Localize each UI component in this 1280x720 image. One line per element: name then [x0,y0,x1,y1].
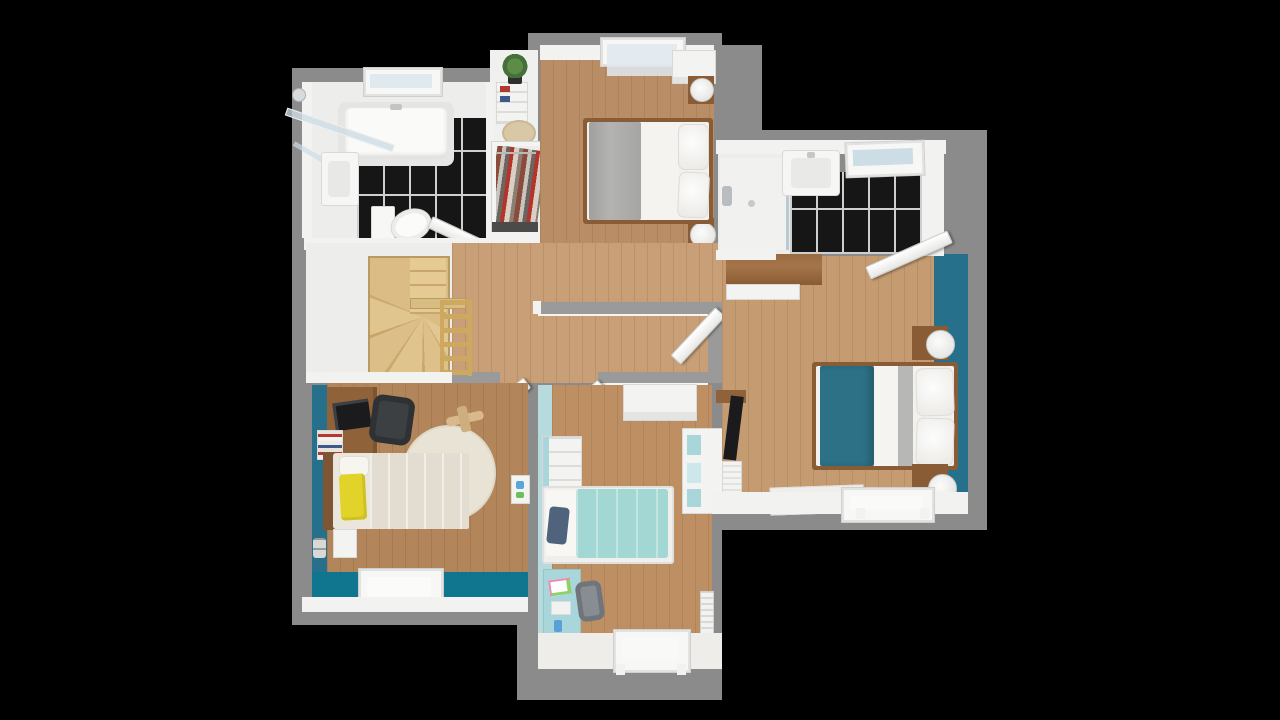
floorplan-scene [0,0,1280,720]
washbasin [321,152,359,206]
child-chair [574,579,605,622]
wardrobe-clothes [492,145,546,229]
bookcase-aqua-bin-2 [687,463,701,483]
hallway-wall-bottom [598,372,708,383]
closet-shelf-clothes [500,86,510,92]
hallway-wall-top [538,302,722,314]
ensuite-washbasin [782,150,840,196]
bathroom-window [364,68,442,96]
top-bedroom-window-glass [607,44,677,76]
child-desk-notepad [551,601,571,615]
ensuite-skylight-glass [853,148,914,166]
ensuite-shower-head [722,186,732,206]
desk-chair [368,393,416,446]
bed-top-pillow-1 [678,124,709,170]
master-window-post-2 [920,508,929,519]
shelf-toy-2 [516,492,524,498]
left-window-post-2 [429,598,438,611]
bathroom-window-glass [370,74,432,88]
child-window-post-1 [616,664,625,675]
left-bedroom-wall-bottom [302,597,528,612]
wardrobe-base [492,222,538,232]
plant-leaves-icon [501,52,529,78]
bed-master-pillow-2 [915,417,955,466]
bed-top-pillow-2 [677,171,710,219]
wardrobe-rail [496,152,536,154]
child-desk-paper [548,578,572,597]
ensuite-wall-bottom-stub [716,250,776,260]
washbasin-bowl [328,161,350,197]
shelf-toy [516,481,524,489]
hallway-wall-top-endcap [533,301,541,314]
landing-wall-bottom [306,372,452,383]
master-lamp-top [926,330,955,359]
bed-top-duvet [641,122,679,220]
open-wardrobe [492,142,546,234]
master-dresser-ledge [726,284,800,300]
bathroom-wall-left [302,82,312,238]
shower-head [292,88,306,102]
ensuite-skylight [845,141,924,178]
child-bed-aqua-blanket [576,489,668,558]
walk-in-shower [720,158,789,250]
closet-shelf-clothes-2 [500,96,510,102]
shell-strip-top-right [712,45,762,140]
bed-master-pillow-1 [915,367,955,416]
ensuite-basin-bowl [791,158,831,188]
shoes [313,538,326,558]
ensuite-faucet [807,152,815,158]
bookcase-aqua-bin-3 [687,489,701,507]
closet-shelf-unit [496,82,528,124]
bed-left-yellow-pillow [339,473,367,520]
master-window-post-1 [856,508,865,519]
stair-rail-ladder [440,300,472,376]
wall-shelf-small [511,475,530,504]
bed-master-gray-throw [898,366,913,466]
left-bedroom-nightstand [333,529,357,558]
bookcase-aqua-bin-1 [687,435,701,455]
child-window-pane [622,638,678,660]
shower-drain [748,200,755,207]
child-sideboard [623,384,697,421]
bathtub-faucet [390,104,402,110]
child-window-post-2 [677,664,686,675]
child-bed-navy-pillow [546,506,570,545]
lamp-top-1 [690,78,714,102]
child-dresser-accent [543,437,549,493]
bed-top [583,118,713,224]
child-desk [543,569,581,640]
bed-master [812,362,958,470]
bed-master-teal-blanket [820,366,874,466]
bed-left-duvet [370,453,469,529]
laptop [332,399,372,432]
left-bedroom-window-pane [367,577,431,597]
child-desk-toy [554,620,562,632]
bed-top-gray-blanket [589,122,641,220]
left-window-post-1 [360,598,369,611]
